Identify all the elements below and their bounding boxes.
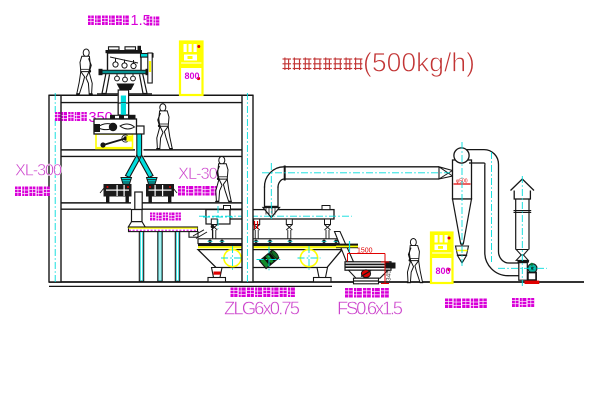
svg-text:FS0.6x1.5: FS0.6x1.5	[337, 298, 403, 319]
svg-text:800: 800	[436, 266, 451, 276]
svg-text:XL-300: XL-300	[15, 162, 62, 180]
svg-text:ZLG6x0.75: ZLG6x0.75	[224, 298, 300, 319]
svg-text:800: 800	[185, 71, 200, 81]
svg-text:1500: 1500	[357, 248, 373, 255]
svg-text:345: 345	[386, 270, 393, 281]
svg-text:(500kg/h): (500kg/h)	[363, 48, 475, 78]
